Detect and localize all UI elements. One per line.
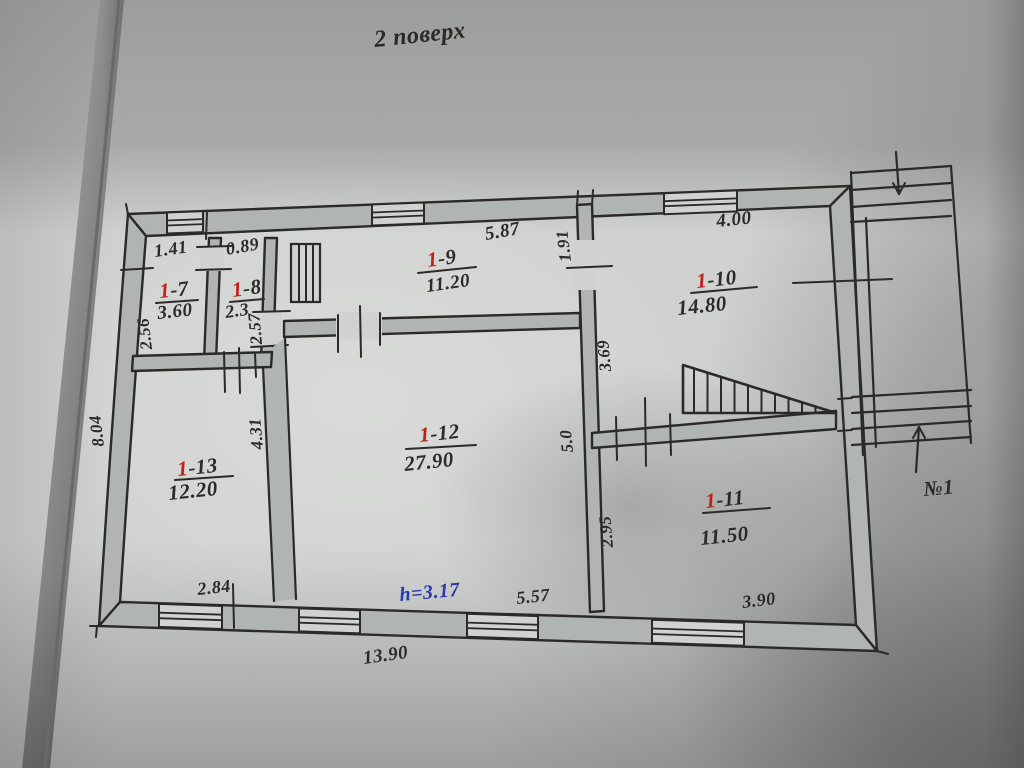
svg-text:1.91: 1.91 (552, 229, 575, 263)
svg-text:1-9: 1-9 (425, 244, 458, 272)
svg-text:3.60: 3.60 (155, 299, 193, 324)
svg-text:1-7: 1-7 (158, 276, 191, 303)
svg-text:2.56: 2.56 (133, 317, 156, 352)
svg-text:1-11: 1-11 (704, 485, 746, 513)
svg-text:11.50: 11.50 (699, 521, 750, 550)
svg-text:3.69: 3.69 (593, 339, 615, 373)
svg-text:4.31: 4.31 (245, 417, 267, 451)
svg-text:2.57: 2.57 (244, 311, 266, 346)
svg-text:5.0: 5.0 (556, 429, 577, 453)
svg-text:8.04: 8.04 (85, 414, 108, 448)
svg-text:№1: №1 (921, 474, 955, 501)
svg-text:5.57: 5.57 (515, 585, 551, 608)
svg-text:1-8: 1-8 (230, 274, 263, 302)
svg-text:1-12: 1-12 (418, 419, 461, 447)
svg-text:2.84: 2.84 (195, 576, 231, 599)
svg-text:3.90: 3.90 (740, 588, 777, 612)
svg-text:2.95: 2.95 (595, 515, 617, 549)
svg-text:4.00: 4.00 (714, 207, 752, 232)
